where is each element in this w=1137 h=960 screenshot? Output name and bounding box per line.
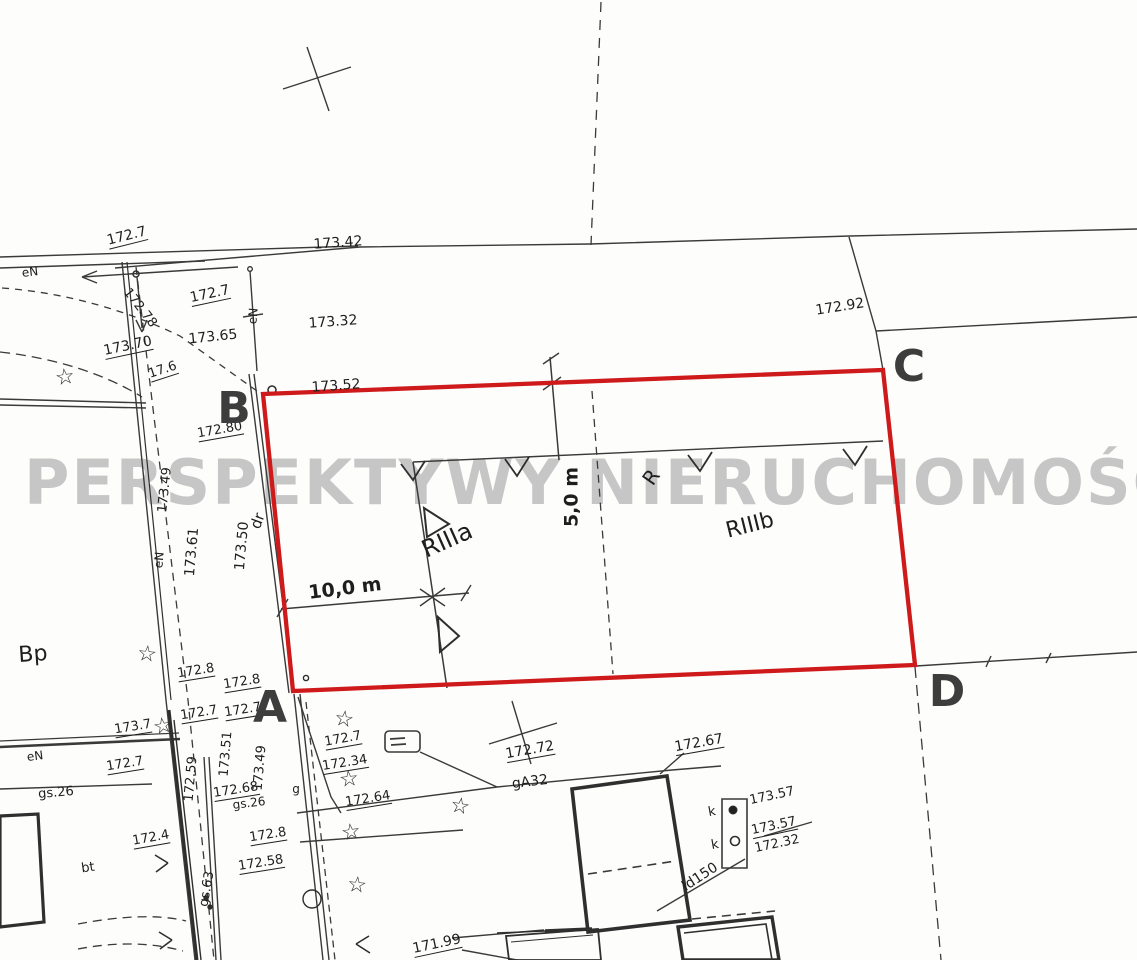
elevation-label: 172.7 [179, 704, 218, 725]
elevation-label: 172.64 [344, 789, 391, 811]
utility-label: eN [21, 265, 39, 279]
star-symbol-icon: ☆ [54, 366, 77, 391]
plot-corner-label-c: C [893, 345, 925, 389]
landuse-label: RIIIa [418, 518, 476, 561]
utility-label: gs.26 [38, 785, 75, 801]
elevation-label: 172.92 [815, 296, 866, 317]
elevation-label: 172.58 [237, 853, 284, 875]
star-symbol-icon: ☆ [333, 708, 356, 733]
elevation-label: 172.7 [189, 283, 232, 307]
utility-label: k [707, 805, 717, 819]
plot-corner-label-d: D [929, 670, 966, 714]
utility-label: k [710, 838, 720, 852]
dimension-label: 10,0 m [307, 575, 382, 603]
utility-label: gs.26 [232, 795, 266, 811]
elevation-label: 172.4 [131, 828, 170, 849]
utility-label: eN [26, 749, 44, 763]
landuse-label: R [639, 466, 663, 489]
elevation-label: 173.50 [233, 521, 251, 571]
elevation-label: 173.49 [156, 467, 174, 514]
elevation-label: 172.67 [673, 732, 724, 756]
elevation-label: 173.70 [102, 334, 153, 360]
elevation-label: 172.7 [323, 729, 362, 750]
elevation-label: 173.52 [311, 377, 361, 394]
elevation-label: 172.72 [504, 739, 555, 763]
star-symbol-icon: ☆ [151, 714, 174, 739]
elevation-label: 173.61 [183, 527, 201, 577]
elevation-label: 173.57 [748, 785, 795, 807]
star-symbol-icon: ☆ [338, 768, 360, 792]
star-symbol-icon: ☆ [136, 643, 158, 667]
star-symbol-icon: ☆ [448, 794, 471, 819]
utility-label: gA32 [511, 773, 549, 791]
landuse-label: bt [80, 861, 95, 876]
dimension-label: 5,0 m [563, 467, 582, 527]
survey-map-screenshot: PERSPEKTYWY NIERUCHOMOŚCI [0, 0, 1137, 960]
elevation-label: 172.78 [121, 286, 159, 330]
elevation-label: 17.6 [147, 359, 179, 382]
elevation-label: 172.59 [183, 756, 200, 802]
elevation-label: 172.7 [106, 224, 149, 249]
utility-label: eN [152, 551, 165, 568]
utility-label: gs.63 [197, 870, 216, 907]
elevation-label: 173.32 [308, 313, 358, 330]
star-symbol-icon: ☆ [340, 821, 363, 846]
utility-label: eN [246, 307, 259, 324]
elevation-label: 173.42 [313, 234, 363, 251]
elevation-label: 172.8 [176, 662, 215, 683]
elevation-label: 173.51 [218, 731, 235, 777]
elevation-label: 172.7 [105, 755, 144, 776]
star-symbol-icon: ☆ [346, 874, 368, 898]
map-labels: 172.7173.42eN172.78172.7173.65173.32172.… [0, 0, 1137, 960]
plot-corner-label-a: A [253, 686, 287, 730]
landuse-label: Bp [18, 643, 49, 667]
utility-label: ld150 [680, 860, 721, 893]
elevation-label: 173.49 [252, 745, 269, 791]
plot-corner-label-b: B [217, 387, 251, 431]
elevation-label: 173.7 [113, 718, 152, 739]
elevation-label: 171.99 [411, 932, 462, 958]
landuse-label: RIIIb [724, 509, 777, 542]
utility-label: g [292, 783, 300, 795]
elevation-label: 172.8 [248, 826, 287, 847]
elevation-label: 173.65 [188, 327, 238, 346]
